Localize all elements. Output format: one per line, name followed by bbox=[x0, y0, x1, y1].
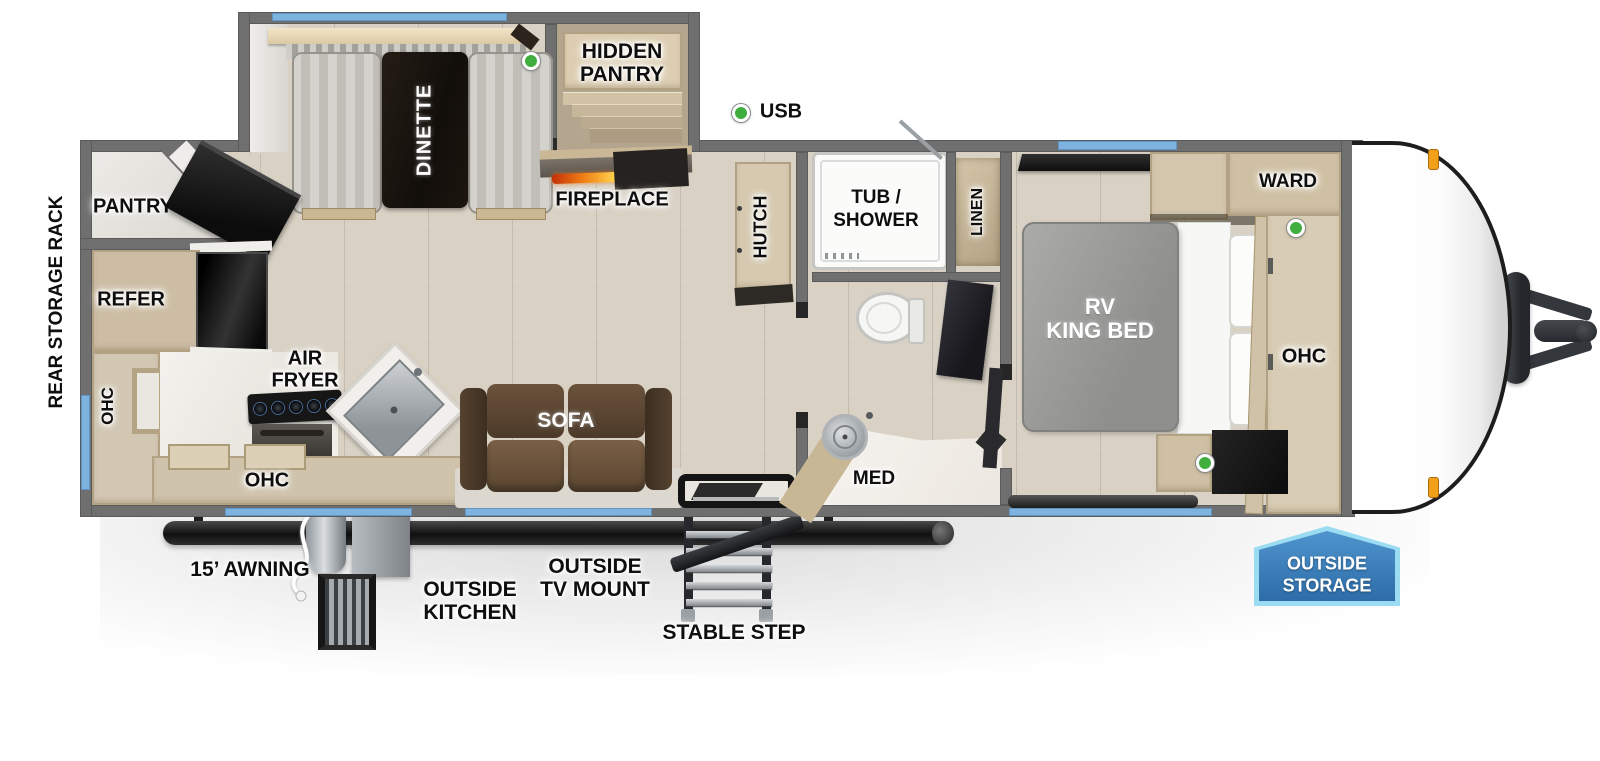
bench-base bbox=[476, 208, 546, 220]
hidden-pantry-label: HIDDEN bbox=[582, 40, 663, 64]
window-bedroom-top bbox=[1058, 141, 1177, 150]
door-jamb bbox=[796, 302, 808, 318]
linen-wall-left bbox=[946, 152, 956, 282]
nightstand-dark bbox=[1212, 430, 1288, 494]
outside-kitchen-label: KITCHEN bbox=[423, 601, 516, 625]
window-valance bbox=[268, 28, 520, 44]
front-cap bbox=[1352, 141, 1512, 514]
usb-legend-dot bbox=[732, 104, 750, 122]
entry-door bbox=[678, 474, 795, 508]
window-slide bbox=[272, 13, 507, 21]
door-jamb bbox=[796, 412, 808, 428]
tub-shower-label: SHOWER bbox=[833, 210, 919, 232]
rear-storage-rack-label: REAR STORAGE RACK bbox=[46, 196, 68, 409]
sofa-armrest bbox=[645, 388, 672, 490]
outside-storage-label: STORAGE bbox=[1283, 576, 1372, 597]
hutch-knob bbox=[737, 248, 742, 253]
fireplace-label: FIREPLACE bbox=[555, 189, 668, 212]
hitch-ball-socket bbox=[1576, 321, 1597, 342]
bench-base bbox=[302, 208, 376, 220]
ohc-bedroom-label: OHC bbox=[1282, 346, 1326, 369]
sofa-label: SOFA bbox=[537, 409, 594, 433]
outside-tv-mount-label: TV MOUNT bbox=[540, 578, 650, 602]
air-fryer-label: AIR bbox=[288, 348, 322, 371]
sofa-seat-cushion bbox=[487, 440, 564, 492]
marker-light-icon bbox=[1428, 149, 1439, 170]
bedroom-wall-upper bbox=[1000, 152, 1012, 380]
faucet-dot bbox=[866, 412, 873, 419]
counter-board bbox=[168, 444, 230, 470]
dinette-bench bbox=[292, 52, 382, 214]
stable-step-label: STABLE STEP bbox=[662, 621, 805, 645]
window-bedroom-bottom bbox=[1009, 508, 1212, 516]
slide-wall-right bbox=[688, 12, 700, 152]
wall-top-right bbox=[688, 140, 1363, 152]
bath-sink-icon bbox=[822, 414, 868, 460]
bed-slide-rail bbox=[1008, 495, 1198, 508]
ward-label: WARD bbox=[1259, 171, 1317, 193]
pantry-step bbox=[590, 128, 682, 143]
ohc-rear-label: OHC bbox=[98, 387, 118, 425]
grill-icon bbox=[318, 574, 376, 650]
sofa-seat-cushion bbox=[568, 440, 645, 492]
window-sofa bbox=[465, 508, 652, 516]
toilet-tank bbox=[908, 298, 925, 344]
stable-step-rung bbox=[686, 599, 772, 606]
usb-legend-label: USB bbox=[760, 101, 802, 124]
refer-label: REFER bbox=[97, 289, 165, 312]
bed-platform bbox=[1177, 222, 1231, 434]
usb-port-dot bbox=[1196, 454, 1214, 472]
hidden-pantry-label: PANTRY bbox=[580, 63, 664, 87]
outside-kitchen-label: OUTSIDE bbox=[423, 578, 516, 602]
marker-light-icon bbox=[1428, 477, 1439, 498]
pantry-label: PANTRY bbox=[93, 196, 173, 219]
outside-tv-mount-label: OUTSIDE bbox=[548, 555, 641, 579]
hutch-label: HUTCH bbox=[751, 196, 772, 259]
awning-label: 15’ AWNING bbox=[190, 558, 309, 582]
stable-step-rung bbox=[686, 565, 772, 572]
dinette-label: DINETTE bbox=[414, 84, 437, 177]
king-bed-label: RV bbox=[1085, 294, 1115, 320]
awning-bar-endcap bbox=[932, 521, 954, 545]
outside-storage-label: OUTSIDE bbox=[1287, 554, 1367, 575]
window-rear bbox=[81, 395, 90, 490]
counter-board bbox=[244, 444, 306, 470]
air-fryer-label: FRYER bbox=[271, 370, 338, 393]
linen-label: LINEN bbox=[969, 188, 987, 236]
outside-kitchen-box bbox=[352, 515, 410, 577]
window-kitchen bbox=[225, 508, 412, 516]
faucet-dot bbox=[414, 368, 422, 376]
king-bed-label: KING BED bbox=[1046, 318, 1154, 344]
usb-port-dot bbox=[522, 52, 540, 70]
cabinet-shadow-strip bbox=[1150, 214, 1228, 222]
fireplace-cabinet bbox=[613, 148, 689, 190]
hutch-knob bbox=[737, 206, 742, 211]
bedroom-tv-icon bbox=[1018, 154, 1162, 171]
hall-wall-upper bbox=[796, 152, 808, 318]
ohc-kitchen-label: OHC bbox=[245, 470, 289, 493]
stable-step-rung bbox=[686, 582, 772, 589]
refrigerator-icon bbox=[196, 252, 268, 352]
slide-wall-left bbox=[238, 12, 250, 152]
tub-shower-label: TUB / bbox=[851, 187, 901, 209]
rv-floorplan: DINETTE HIDDEN PANTRY FIREPLACE USB PANT… bbox=[0, 0, 1600, 761]
med-label: MED bbox=[853, 468, 895, 490]
dinette-bench bbox=[468, 52, 553, 214]
bath-wall-mid bbox=[812, 272, 1012, 282]
usb-port-dot bbox=[1287, 219, 1305, 237]
sofa-armrest bbox=[460, 388, 487, 490]
bed-overhead-cabinet bbox=[1150, 152, 1228, 220]
